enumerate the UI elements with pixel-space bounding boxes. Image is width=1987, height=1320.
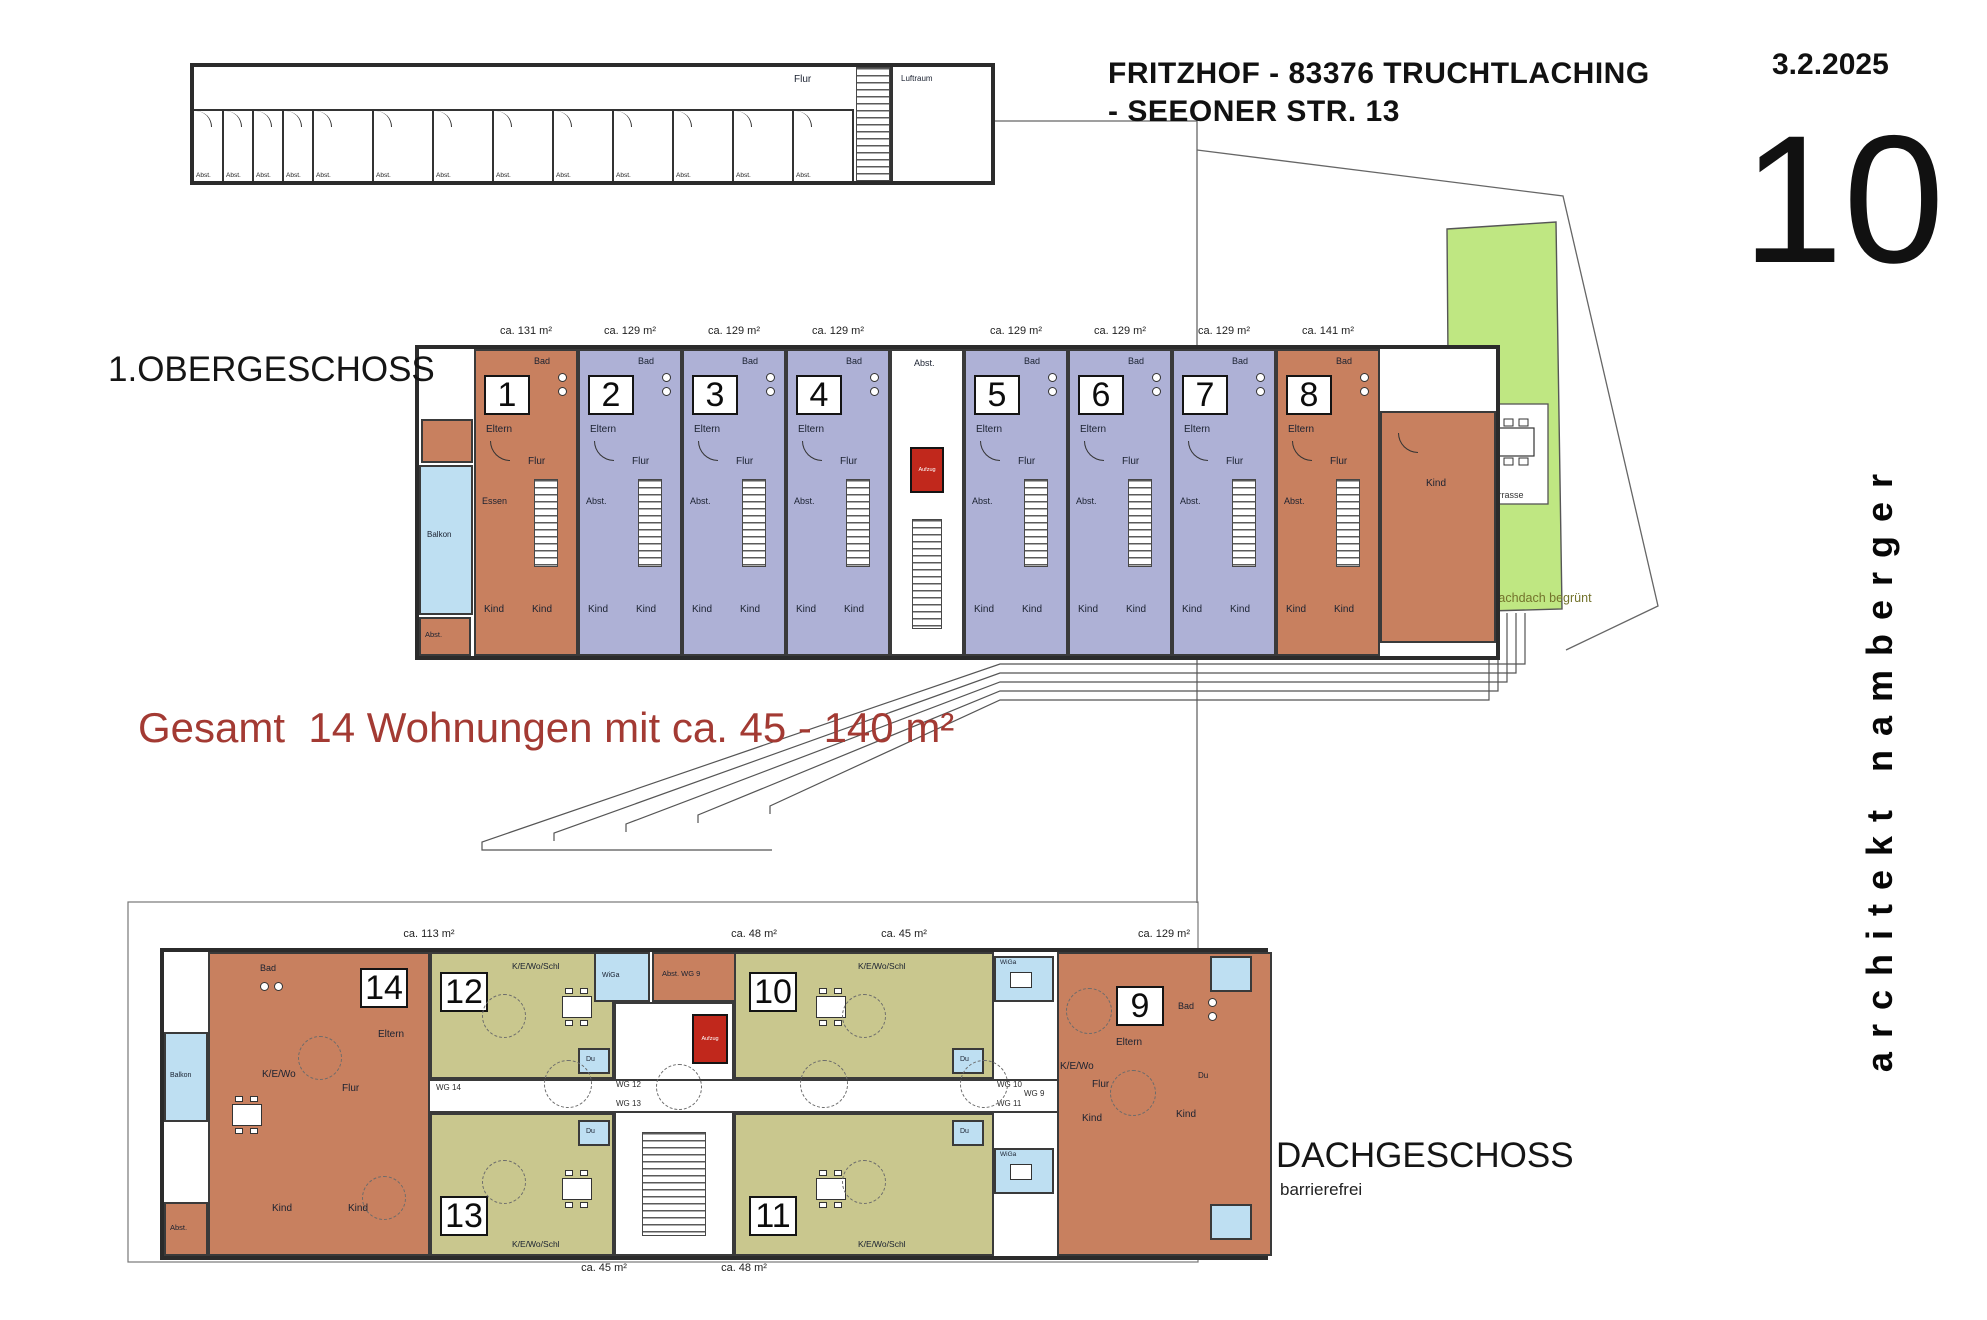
og-unit-3: 3BadElternFlurAbst.KindKind	[682, 349, 786, 656]
plan-date: 3.2.2025	[1772, 48, 1889, 82]
room-label-kind: Kind	[1082, 1114, 1102, 1125]
apartment-door-tag: WG 9	[1024, 1089, 1044, 1098]
room-label-eltern: Eltern	[976, 425, 1002, 436]
sheet-number: 10	[1742, 108, 1944, 290]
unit-stairs	[1336, 479, 1360, 567]
turning-circle	[482, 994, 526, 1038]
chair-icon	[580, 1020, 588, 1026]
room-label-kind: Kind	[844, 605, 864, 616]
og-area-label: ca. 129 m²	[1198, 325, 1250, 337]
dg-area-label: ca. 129 m²	[1138, 928, 1190, 940]
dg-unit-number: 11	[749, 1196, 797, 1236]
og-unit-number: 6	[1078, 375, 1124, 415]
room-label-kind: Kind	[796, 605, 816, 616]
chair-icon	[580, 1202, 588, 1208]
storage-label: Abst.	[170, 1224, 187, 1232]
wc-fixture-icon	[870, 387, 879, 396]
basement-storage-cell: Abst.	[194, 109, 224, 181]
dg-unit-number: 9	[1116, 986, 1164, 1026]
room-label-mid: Abst.	[1076, 497, 1097, 506]
shower-cell: Du	[578, 1120, 610, 1146]
og-stairwell: Abst.Aufzug	[890, 349, 964, 656]
chair-icon	[565, 1202, 573, 1208]
room-label-flur: Flur	[632, 457, 649, 468]
unit-stairs	[846, 479, 870, 567]
door-arc	[316, 111, 332, 127]
storage-wg9-label: Abst. WG 9	[662, 970, 700, 978]
project-title: FRITZHOF - 83376 TRUCHTLACHING - SEEONER…	[1108, 55, 1650, 132]
chair-icon	[235, 1128, 243, 1134]
wc-fixture-icon	[662, 373, 671, 382]
room-label-eltern: Eltern	[590, 425, 616, 436]
og-unit-4: 4BadElternFlurAbst.KindKind	[786, 349, 890, 656]
room-label-kind: Kind	[272, 1204, 292, 1215]
stairwell-stairs	[912, 519, 942, 629]
basement-storage-cell: Abst.	[734, 109, 794, 181]
terrace-chair-icon	[1504, 458, 1513, 465]
chair-icon	[565, 1170, 573, 1176]
wc-fixture-icon	[662, 387, 671, 396]
room-label-bad: Bad	[534, 357, 550, 366]
dg-unit-number: 12	[440, 972, 488, 1012]
basement-storage-cell: Abst.	[284, 109, 314, 181]
dg-area-label: ca. 45 m²	[581, 1262, 627, 1274]
wc-fixture-icon	[870, 373, 879, 382]
og-area-label: ca. 131 m²	[500, 325, 552, 337]
room-label-bad: Bad	[1336, 357, 1352, 366]
storage-cell-label: Abst.	[226, 172, 241, 179]
storage-cell-label: Abst.	[196, 172, 211, 179]
room-label-kind: Kind	[974, 605, 994, 616]
unit-stairs	[638, 479, 662, 567]
room-label-flur: Flur	[1226, 457, 1243, 468]
unit-stairs	[534, 479, 558, 567]
wc-fixture-icon	[1152, 373, 1161, 382]
basement-storage-cell: Abst.	[494, 109, 554, 181]
room-label-kewo: K/E/Wo	[262, 1070, 296, 1081]
chair-icon	[834, 1020, 842, 1026]
room-label-mid: Abst.	[1180, 497, 1201, 506]
room-label-eltern: Eltern	[1116, 1038, 1142, 1049]
storage-cell-label: Abst.	[316, 172, 331, 179]
room-label-mid: Abst.	[690, 497, 711, 506]
basement-storage-cell: Abst.	[314, 109, 374, 181]
wc-fixture-icon	[766, 387, 775, 396]
door-arc	[796, 111, 812, 127]
basement-stairs	[856, 67, 890, 181]
unit-stairs	[1232, 479, 1256, 567]
project-title-line2: - SEEONER STR. 13	[1108, 93, 1650, 131]
basement-storage-cell: Abst.	[224, 109, 254, 181]
chair-icon	[834, 1170, 842, 1176]
storage-cell-label: Abst.	[796, 172, 811, 179]
room-label-bad: Bad	[742, 357, 758, 366]
room-label-bad: Bad	[1024, 357, 1040, 366]
basement-storage-cell: Abst.	[254, 109, 284, 181]
shower-cell: Du	[952, 1120, 984, 1146]
room-label-kind: Kind	[636, 605, 656, 616]
door-arc	[226, 111, 242, 127]
table-icon	[1010, 1164, 1032, 1180]
og-area-label: ca. 129 m²	[990, 325, 1042, 337]
chair-icon	[819, 1020, 827, 1026]
og-left-room	[421, 419, 473, 463]
chair-icon	[834, 988, 842, 994]
door-arc	[736, 111, 752, 127]
chair-icon	[250, 1128, 258, 1134]
room-label-bad: Bad	[1128, 357, 1144, 366]
room-label-kewo: K/E/Wo	[1060, 1062, 1094, 1073]
room-label-kind: Kind	[1286, 605, 1306, 616]
chair-icon	[580, 988, 588, 994]
turning-circle	[482, 1160, 526, 1204]
table-icon	[1010, 972, 1032, 988]
shower-label: Du	[960, 1128, 969, 1135]
room-label-eltern: Eltern	[1184, 425, 1210, 436]
chair-icon	[819, 988, 827, 994]
room-label-kind: Kind	[740, 605, 760, 616]
door-arc	[1398, 433, 1418, 453]
door-arc	[496, 111, 512, 127]
storage-cell-label: Abst.	[496, 172, 511, 179]
room-label-mid: Abst.	[794, 497, 815, 506]
table-icon	[562, 1178, 592, 1200]
plan-sheet: Terrasse Flachdach begrünt FRITZHOF - 83…	[0, 0, 1987, 1320]
room-label-kind: Kind	[1230, 605, 1250, 616]
shower-label: Du	[1198, 1072, 1208, 1080]
green-roof-label: Flachdach begrünt	[1488, 591, 1592, 605]
apartment-door-tag: WG 12	[616, 1080, 641, 1089]
og-unit-1: 1BadElternFlurEssenKindKind	[474, 349, 578, 656]
turning-circle	[656, 1064, 702, 1110]
basement-storage-cell: Abst.	[614, 109, 674, 181]
dg-unit-number: 14	[360, 968, 408, 1008]
chair-icon	[250, 1096, 258, 1102]
terrace-table-icon	[1498, 428, 1534, 456]
og-area-label: ca. 141 m²	[1302, 325, 1354, 337]
og-unit-6: 6BadElternFlurAbst.KindKind	[1068, 349, 1172, 656]
dg-area-label: ca. 48 m²	[731, 928, 777, 940]
door-arc	[256, 111, 272, 127]
room-label-studio: K/E/Wo/Schl	[512, 1240, 560, 1249]
wc-fixture-icon	[274, 982, 283, 991]
wc-fixture-icon	[1048, 387, 1057, 396]
storage-label: Abst.	[425, 631, 442, 639]
terrace-chair-icon	[1519, 458, 1528, 465]
balcony-label: Balkon	[170, 1072, 191, 1079]
shower-label: Du	[586, 1056, 595, 1063]
storage-cell-label: Abst.	[556, 172, 571, 179]
room-label-kind: Kind	[1334, 605, 1354, 616]
room-label-studio: K/E/Wo/Schl	[858, 962, 906, 971]
og-unit-2: 2BadElternFlurAbst.KindKind	[578, 349, 682, 656]
attic-floor-subtitle: barrierefrei	[1280, 1180, 1362, 1200]
project-title-line1: FRITZHOF - 83376 TRUCHTLACHING	[1108, 55, 1650, 93]
dg-area-label: ca. 48 m²	[721, 1262, 767, 1274]
turning-circle	[842, 1160, 886, 1204]
shower-label: Du	[960, 1056, 969, 1063]
door-arc	[698, 441, 718, 461]
door-arc	[594, 441, 614, 461]
architect-sidebar: architekt namberger	[1859, 341, 1901, 1191]
room-label-bad: Bad	[1178, 1002, 1194, 1011]
turning-circle	[1110, 1070, 1156, 1116]
room-label-eltern: Eltern	[378, 1030, 404, 1041]
og-unit-5: 5BadElternFlurAbst.KindKind	[964, 349, 1068, 656]
turning-circle	[1066, 988, 1112, 1034]
summary-text: Gesamt 14 Wohnungen mit ca. 45 - 140 m²	[138, 704, 954, 752]
room-label-mid: Abst.	[586, 497, 607, 506]
door-arc	[376, 111, 392, 127]
room-label-mid: Abst.	[972, 497, 993, 506]
door-arc	[286, 111, 302, 127]
wc-fixture-icon	[1208, 998, 1217, 1007]
room-label-bad: Bad	[1232, 357, 1248, 366]
room-label-eltern: Eltern	[486, 425, 512, 436]
wintergarten-label: WiGa	[1000, 1152, 1016, 1159]
storage-cell-label: Abst.	[736, 172, 751, 179]
og-unit-number: 2	[588, 375, 634, 415]
basement-storage-cell: Abst.	[554, 109, 614, 181]
room-label-kind: Kind	[1126, 605, 1146, 616]
storage-cell-label: Abst.	[286, 172, 301, 179]
door-arc	[1084, 441, 1104, 461]
wintergarten-cell: WiGa	[994, 956, 1054, 1002]
og-unit-number: 1	[484, 375, 530, 415]
room-label-kind: Kind	[692, 605, 712, 616]
room-label-bad: Bad	[638, 357, 654, 366]
basement-storage-cell: Abst.	[794, 109, 854, 181]
turning-circle	[362, 1176, 406, 1220]
basement-storage-cell: Abst.	[374, 109, 434, 181]
room-label-eltern: Eltern	[798, 425, 824, 436]
storage-cell-label: Abst.	[436, 172, 451, 179]
turning-circle	[960, 1060, 1008, 1108]
turning-circle	[842, 994, 886, 1038]
og-unit-number: 7	[1182, 375, 1228, 415]
chair-icon	[235, 1096, 243, 1102]
room-label-kind: Kind	[532, 605, 552, 616]
chair-icon	[580, 1170, 588, 1176]
dg-wing-storage: Abst.	[164, 1202, 208, 1256]
wintergarten-cell: WiGa	[594, 952, 650, 1002]
og-unit-7: 7BadElternFlurAbst.KindKind	[1172, 349, 1276, 656]
basement-storage-row: Abst.Abst.Abst.Abst.Abst.Abst.Abst.Abst.…	[194, 109, 854, 181]
table-icon	[562, 996, 592, 1018]
room-label-studio: K/E/Wo/Schl	[858, 1240, 906, 1249]
turning-circle	[298, 1036, 342, 1080]
table-icon	[232, 1104, 262, 1126]
og-unit-number: 4	[796, 375, 842, 415]
door-arc	[1292, 441, 1312, 461]
og-area-label: ca. 129 m²	[812, 325, 864, 337]
wc-fixture-icon	[1256, 373, 1265, 382]
wc-fixture-icon	[1360, 387, 1369, 396]
wintergarten-label: WiGa	[602, 972, 620, 979]
corridor-label: Flur	[794, 75, 811, 86]
room-label-flur: Flur	[528, 457, 545, 468]
room-label-flur: Flur	[1092, 1080, 1109, 1091]
wc-fixture-icon	[1256, 387, 1265, 396]
wc-fixture-icon	[558, 387, 567, 396]
chair-icon	[819, 1170, 827, 1176]
og-unit-number: 8	[1286, 375, 1332, 415]
room-label-mid: Abst.	[1284, 497, 1305, 506]
room-label-flur: Flur	[840, 457, 857, 468]
storage-wg9-cell: Abst. WG 9	[652, 952, 744, 1002]
room-label-kind: Kind	[484, 605, 504, 616]
door-arc	[436, 111, 452, 127]
room-label-flur: Flur	[342, 1084, 359, 1095]
dg-balcony: Balkon	[164, 1032, 208, 1122]
basement-storage-cell: Abst.	[434, 109, 494, 181]
terrace-chair-icon	[1519, 419, 1528, 426]
og-right-wing: Kind	[1380, 411, 1496, 643]
storage-cell-label: Abst.	[616, 172, 631, 179]
dg-unit-number: 13	[440, 1196, 488, 1236]
room-label-kind: Kind	[1426, 479, 1446, 490]
room-label-bad: Bad	[260, 964, 276, 973]
room-label-studio: K/E/Wo/Schl	[512, 962, 560, 971]
storage-cell-label: Abst.	[256, 172, 271, 179]
wc-fixture-icon	[1152, 387, 1161, 396]
chair-icon	[565, 988, 573, 994]
first-floor-plan: 1BadElternFlurEssenKindKindca. 131 m²2Ba…	[415, 345, 1500, 660]
room-label-flur: Flur	[736, 457, 753, 468]
og-unit-8: 8BadElternFlurAbst.KindKind	[1276, 349, 1380, 656]
room-label-eltern: Eltern	[1288, 425, 1314, 436]
airspace-cell: Luftraum	[890, 67, 991, 181]
basement-strip-plan: Flur Luftraum Abst.Abst.Abst.Abst.Abst.A…	[190, 63, 995, 185]
og-unit-number: 5	[974, 375, 1020, 415]
door-arc	[676, 111, 692, 127]
room-label-flur: Flur	[1122, 457, 1139, 468]
room-label-flur: Flur	[1018, 457, 1035, 468]
door-arc	[802, 441, 822, 461]
dg-area-label: ca. 113 m²	[403, 928, 454, 940]
attic-floor-plan: BalkonAbst.14BadElternK/E/WoFlurKindKind…	[160, 948, 1268, 1260]
apartment-door-tag: WG 14	[436, 1083, 461, 1092]
room-label-kind: Kind	[1182, 605, 1202, 616]
terrace-chair-icon	[1504, 419, 1513, 426]
stairwell-storage-label: Abst.	[914, 359, 935, 368]
room-label-eltern: Eltern	[1080, 425, 1106, 436]
basement-storage-cell: Abst.	[674, 109, 734, 181]
door-arc	[490, 441, 510, 461]
door-arc	[196, 111, 212, 127]
og-wing-storage: Abst.	[419, 617, 471, 656]
storage-cell-label: Abst.	[676, 172, 691, 179]
unit-stairs	[1024, 479, 1048, 567]
shower-label: Du	[586, 1128, 595, 1135]
room-label-kind: Kind	[1176, 1110, 1196, 1121]
unit-stairs	[1128, 479, 1152, 567]
wc-fixture-icon	[1208, 1012, 1217, 1021]
og-balcony: Balkon	[419, 465, 473, 615]
wc-fixture-icon	[260, 982, 269, 991]
door-arc	[980, 441, 1000, 461]
first-floor-title: 1.OBERGESCHOSS	[108, 350, 435, 390]
wc-fixture-icon	[1048, 373, 1057, 382]
apartment-door-tag: WG 13	[616, 1099, 641, 1108]
door-arc	[556, 111, 572, 127]
og-unit-number: 3	[692, 375, 738, 415]
turning-circle	[544, 1060, 592, 1108]
elevator: Aufzug	[910, 447, 944, 493]
door-arc	[1188, 441, 1208, 461]
og-area-label: ca. 129 m²	[604, 325, 656, 337]
unit-stairs	[742, 479, 766, 567]
wintergarten-cell: WiGa	[994, 1148, 1054, 1194]
wintergarten-label: WiGa	[1000, 960, 1016, 967]
turning-circle	[800, 1060, 848, 1108]
room-label-kind: Kind	[588, 605, 608, 616]
wintergarten-cell	[1210, 1204, 1252, 1240]
wc-fixture-icon	[1360, 373, 1369, 382]
room-label-mid: Essen	[482, 497, 507, 506]
storage-cell-label: Abst.	[376, 172, 391, 179]
room-label-kind: Kind	[1078, 605, 1098, 616]
wc-fixture-icon	[558, 373, 567, 382]
attic-floor-title: DACHGESCHOSS	[1276, 1136, 1574, 1176]
chair-icon	[819, 1202, 827, 1208]
room-label-kind: Kind	[1022, 605, 1042, 616]
dg-stairs	[642, 1132, 706, 1236]
room-label-eltern: Eltern	[694, 425, 720, 436]
chair-icon	[565, 1020, 573, 1026]
airspace-label: Luftraum	[901, 75, 961, 83]
room-label-flur: Flur	[1330, 457, 1347, 468]
chair-icon	[834, 1202, 842, 1208]
wc-fixture-icon	[766, 373, 775, 382]
og-area-label: ca. 129 m²	[1094, 325, 1146, 337]
wintergarten-cell	[1210, 956, 1252, 992]
room-label-bad: Bad	[846, 357, 862, 366]
dg-unit-number: 10	[749, 972, 797, 1012]
og-area-label: ca. 129 m²	[708, 325, 760, 337]
dg-area-label: ca. 45 m²	[881, 928, 927, 940]
elevator: Aufzug	[692, 1014, 728, 1064]
balcony-label: Balkon	[427, 531, 451, 539]
door-arc	[616, 111, 632, 127]
